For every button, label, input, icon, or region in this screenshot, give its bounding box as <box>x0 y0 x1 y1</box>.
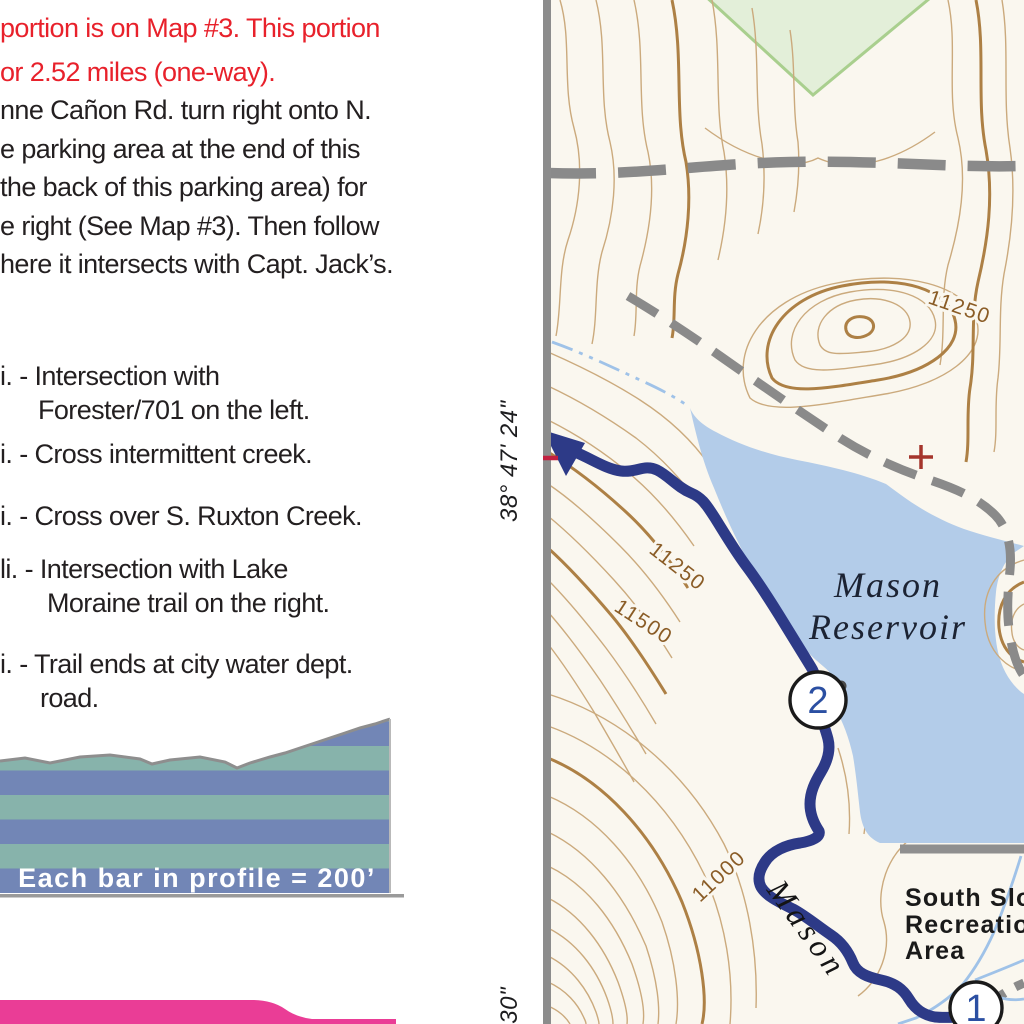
waypoint-1-number: 1 <box>965 988 986 1024</box>
profile-caption: Each bar in profile = 200’ <box>18 863 376 893</box>
waypoint-line-4a: li. - Intersection with Lake <box>0 553 288 585</box>
profile-baseline <box>0 894 404 898</box>
topo-map: 11250 11250 11500 11000 Mason Reservoir … <box>543 0 1024 1024</box>
waypoint-line-1a: i. - Intersection with <box>0 360 219 392</box>
waypoint-marker-2: 2 <box>790 672 846 728</box>
waypoint-line-3: i. - Cross over S. Ruxton Creek. <box>0 500 362 532</box>
area-label-line2: Recreatio <box>905 911 1024 939</box>
latitude-label-upper: 38° 47' 24" <box>496 362 526 522</box>
waypoint-line-5a: i. - Trail ends at city water dept. <box>0 648 353 680</box>
map-border <box>543 0 551 1024</box>
reservoir-label-line1: Mason <box>833 565 942 605</box>
pink-band <box>0 996 420 1024</box>
waypoint-marker-1: 1 <box>950 982 1002 1024</box>
waypoint-line-5b: road. <box>40 682 99 714</box>
elevation-profile: Each bar in profile = 200’ <box>0 712 406 904</box>
directions-line-3: the back of this parking area) for <box>0 171 367 203</box>
waypoint-2-number: 2 <box>807 680 828 722</box>
reservoir-label-line2: Reservoir <box>808 607 967 647</box>
waypoint-line-1b: Forester/701 on the left. <box>38 394 310 426</box>
intro-red-line-1: portion is on Map #3. This portion <box>0 12 380 44</box>
directions-line-4: e right (See Map #3). Then follow <box>0 210 379 242</box>
page: portion is on Map #3. This portion or 2.… <box>0 0 1024 1024</box>
directions-line-1: nne Cañon Rd. turn right onto N. <box>0 94 371 126</box>
waypoint-line-4b: Moraine trail on the right. <box>47 587 329 619</box>
waypoint-line-2: i. - Cross intermittent creek. <box>0 438 312 470</box>
directions-line-2: e parking area at the end of this <box>0 133 360 165</box>
directions-line-5: here it intersects with Capt. Jack’s. <box>0 248 393 280</box>
latitude-label-lower: ' 30" <box>496 946 526 1024</box>
area-label-line3: Area <box>905 937 965 965</box>
intro-red-line-2: or 2.52 miles (one-way). <box>0 56 275 88</box>
area-label-line1: South Slo <box>905 884 1024 912</box>
